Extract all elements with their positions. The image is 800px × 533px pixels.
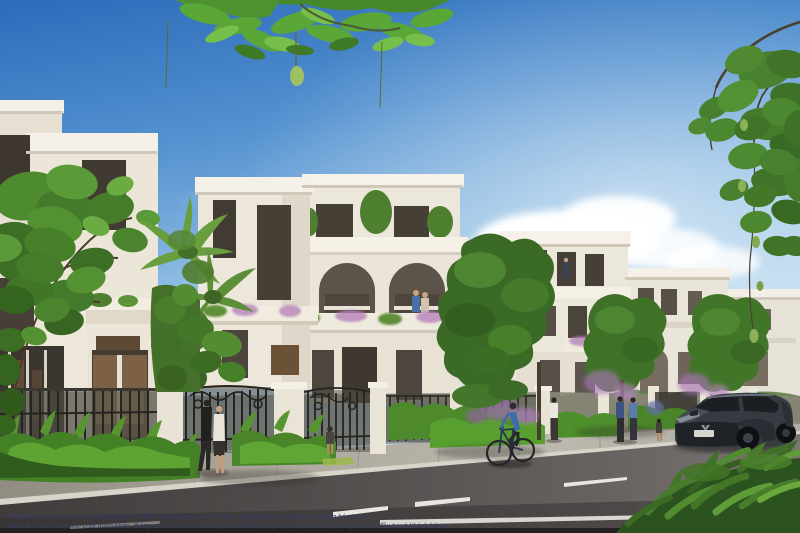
svg-text:* Mọi thông tin trong tài liệu: * Mọi thông tin trong tài liệu này đúng … [5,512,370,521]
svg-text:* Hình ảnh chỉ mang tính chất: * Hình ảnh chỉ mang tính chất tham khảo,… [5,521,447,530]
